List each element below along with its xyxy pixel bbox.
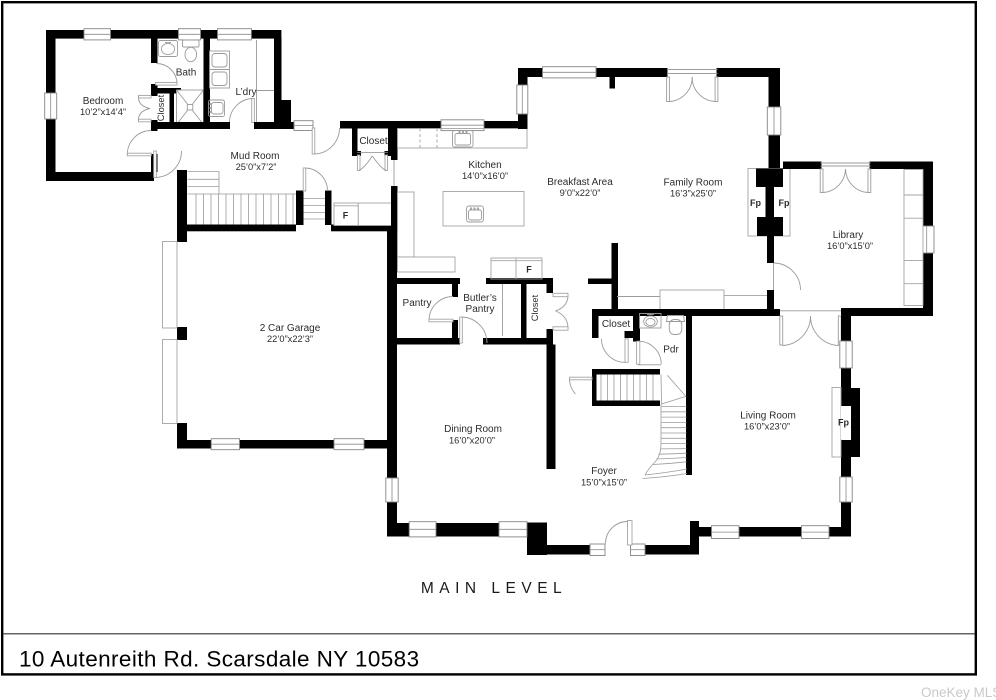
svg-text:14’0”x16’0”: 14’0”x16’0” [462,171,508,181]
svg-text:25’0”x7’2”: 25’0”x7’2” [236,162,277,172]
svg-text:22’0”x22’3”: 22’0”x22’3” [267,334,313,344]
svg-text:Closet: Closet [530,294,540,321]
svg-text:Dining Room: Dining Room [444,424,502,435]
svg-text:Kitchen: Kitchen [468,160,501,171]
svg-text:Family Room: Family Room [664,178,723,189]
svg-text:L’dry: L’dry [235,87,256,98]
svg-text:Bedroom: Bedroom [83,96,124,107]
svg-text:OneKey MLS: OneKey MLS [921,685,996,700]
svg-text:Fp: Fp [838,418,849,428]
svg-text:16’0”x23’0”: 16’0”x23’0” [744,422,790,432]
svg-text:Butler’s: Butler’s [463,293,497,304]
svg-text:Library: Library [833,230,864,241]
svg-text:Closet: Closet [602,319,631,330]
svg-text:10 Autenreith Rd. Scarsdale NY: 10 Autenreith Rd. Scarsdale NY 10583 [19,647,420,672]
svg-text:Pantry: Pantry [466,304,495,315]
svg-text:Pdr: Pdr [663,345,679,356]
svg-text:Mud Room: Mud Room [231,151,280,162]
svg-text:MAIN LEVEL: MAIN LEVEL [421,580,567,597]
svg-text:F: F [343,211,349,221]
svg-text:2 Car Garage: 2 Car Garage [260,323,321,334]
svg-text:9’0”x22’0”: 9’0”x22’0” [560,188,601,198]
svg-text:Closet: Closet [359,136,388,147]
svg-text:16’3”x25’0”: 16’3”x25’0” [670,189,716,199]
svg-text:16’0”x20’0”: 16’0”x20’0” [449,436,495,446]
svg-text:16’0”x15’0”: 16’0”x15’0” [827,241,873,251]
svg-text:Living Room: Living Room [740,411,796,422]
svg-text:Closet: Closet [156,94,166,121]
svg-text:Pantry: Pantry [403,298,432,309]
svg-text:15’0”x15’0”: 15’0”x15’0” [581,478,627,488]
svg-text:Bath: Bath [176,68,197,79]
svg-text:10’2”x14’4”: 10’2”x14’4” [80,107,126,117]
svg-text:Breakfast Area: Breakfast Area [547,177,613,188]
svg-text:F: F [526,265,532,275]
svg-text:Foyer: Foyer [591,466,617,477]
svg-text:Fp: Fp [779,198,790,208]
svg-text:Fp: Fp [750,198,761,208]
